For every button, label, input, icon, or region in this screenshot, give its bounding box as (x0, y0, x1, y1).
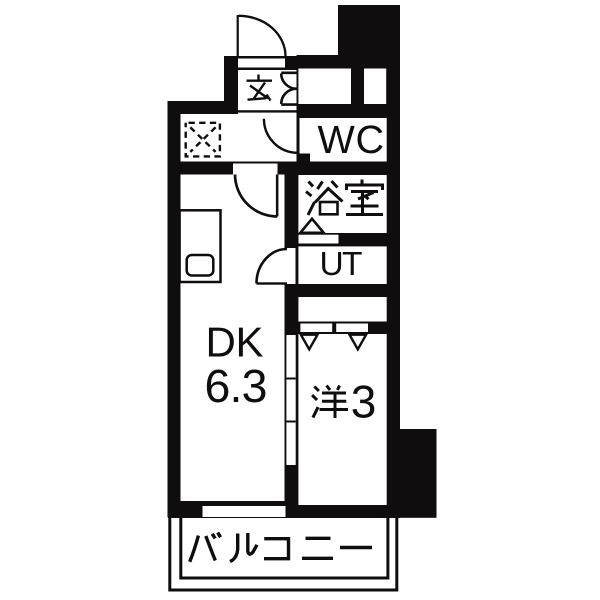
svg-text:DK: DK (205, 318, 263, 365)
svg-text:UT: UT (319, 246, 362, 283)
svg-text:3: 3 (351, 375, 377, 427)
svg-text:WC: WC (317, 118, 384, 162)
svg-text:6.3: 6.3 (204, 360, 267, 412)
